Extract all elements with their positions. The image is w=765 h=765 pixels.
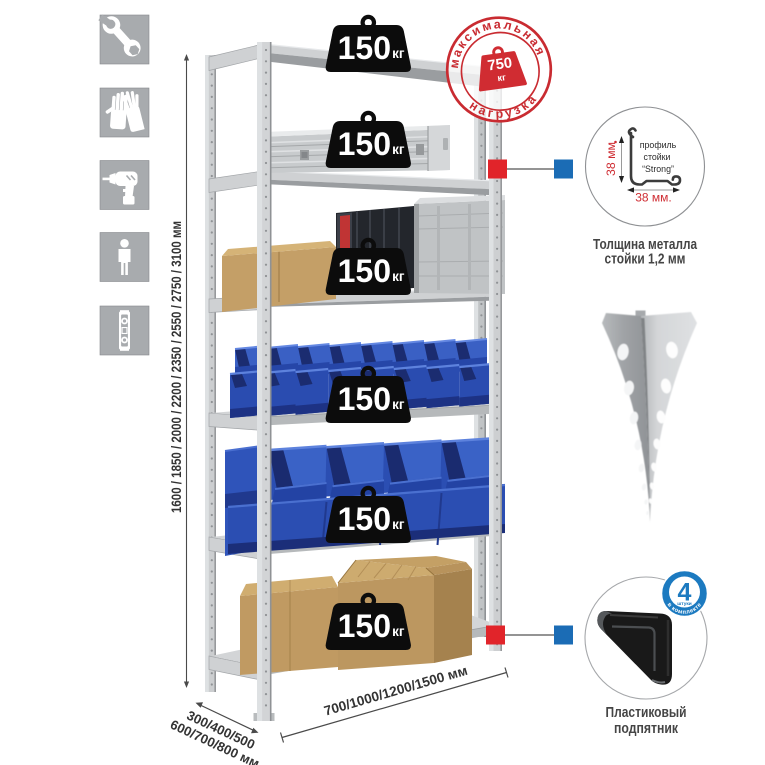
svg-text:150: 150 <box>338 126 391 162</box>
svg-text:кг: кг <box>392 624 405 639</box>
svg-text:Пластиковый: Пластиковый <box>606 704 687 721</box>
svg-text:150: 150 <box>338 608 391 644</box>
svg-text:“Strong”: “Strong” <box>642 164 674 174</box>
svg-text:профиль: профиль <box>640 140 677 150</box>
svg-text:стойки: стойки <box>644 152 671 162</box>
svg-text:кг: кг <box>392 142 405 157</box>
svg-text:38 мм: 38 мм <box>604 142 618 176</box>
svg-text:38 мм.: 38 мм. <box>635 191 672 205</box>
svg-text:1600 / 1850 / 2000 / 2200 / 23: 1600 / 1850 / 2000 / 2200 / 2350 / 2550 … <box>168 221 184 513</box>
svg-text:подпятник: подпятник <box>614 720 678 737</box>
svg-text:штуки: штуки <box>677 602 692 607</box>
svg-text:стойки 1,2 мм: стойки 1,2 мм <box>605 251 686 268</box>
svg-text:кг: кг <box>392 269 405 284</box>
svg-text:150: 150 <box>338 30 391 66</box>
svg-text:кг: кг <box>392 517 405 532</box>
svg-text:150: 150 <box>338 501 391 537</box>
svg-text:150: 150 <box>338 253 391 289</box>
svg-text:кг: кг <box>392 46 405 61</box>
svg-text:150: 150 <box>338 381 391 417</box>
svg-text:750: 750 <box>487 55 514 74</box>
svg-text:кг: кг <box>392 397 405 412</box>
svg-text:кг: кг <box>497 72 507 83</box>
